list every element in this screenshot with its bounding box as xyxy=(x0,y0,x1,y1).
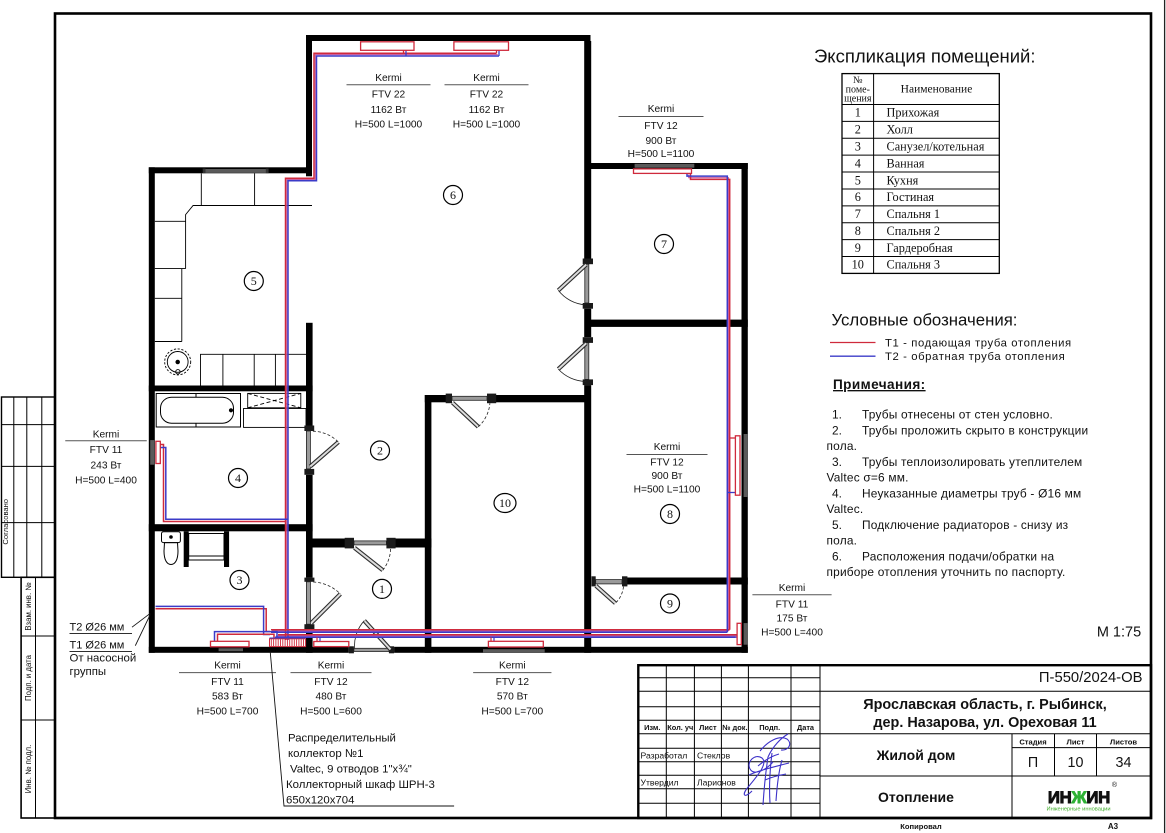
svg-text:2.: 2. xyxy=(832,423,842,437)
svg-text:Стадия: Стадия xyxy=(1019,738,1046,747)
svg-text:П: П xyxy=(1028,755,1038,771)
svg-text:Valtec, 9 отводов 1"х¾": Valtec, 9 отводов 1"х¾" xyxy=(290,764,412,776)
svg-text:Kermi: Kermi xyxy=(499,661,526,672)
svg-text:Лист: Лист xyxy=(1067,738,1085,747)
svg-text:Примечания:: Примечания: xyxy=(833,377,926,392)
svg-text:Жилой дом: Жилой дом xyxy=(876,747,956,763)
svg-text:3: 3 xyxy=(237,573,243,587)
svg-text:570 Вт: 570 Вт xyxy=(497,692,528,703)
svg-text:Отопление: Отопление xyxy=(878,789,954,805)
svg-text:Kermi: Kermi xyxy=(648,104,675,115)
svg-text:Холл: Холл xyxy=(887,123,913,137)
svg-text:H=500 L=700: H=500 L=700 xyxy=(481,707,543,718)
svg-text:Условные обозначения:: Условные обозначения: xyxy=(832,310,1018,329)
svg-text:FTV 12: FTV 12 xyxy=(314,677,348,688)
svg-text:583 Вт: 583 Вт xyxy=(212,692,243,703)
svg-text:От насосной: От насосной xyxy=(70,653,137,665)
svg-text:Инв. № подл.: Инв. № подл. xyxy=(24,745,33,794)
svg-text:Дата: Дата xyxy=(797,723,815,732)
svg-text:Valtec.: Valtec. xyxy=(827,502,864,516)
svg-text:1162 Вт: 1162 Вт xyxy=(469,105,505,116)
svg-text:Подп.: Подп. xyxy=(759,723,780,732)
svg-text:900 Вт: 900 Вт xyxy=(646,136,677,147)
svg-text:9: 9 xyxy=(667,597,673,611)
svg-text:Спальня 3: Спальня 3 xyxy=(887,258,941,272)
svg-text:Т1 Ø26 мм: Т1 Ø26 мм xyxy=(70,639,125,651)
svg-text:приборе отопления уточнить по: приборе отопления уточнить по паспорту. xyxy=(827,565,1066,579)
svg-text:ИНЖИН: ИНЖИН xyxy=(1048,788,1110,807)
svg-text:®: ® xyxy=(1112,781,1118,789)
svg-text:Санузел/котельная: Санузел/котельная xyxy=(887,140,985,154)
svg-text:Прихожая: Прихожая xyxy=(887,106,940,120)
svg-text:FTV 12: FTV 12 xyxy=(644,121,678,132)
svg-text:Спальня 2: Спальня 2 xyxy=(887,224,941,238)
svg-text:5.: 5. xyxy=(832,518,842,532)
svg-text:1162 Вт: 1162 Вт xyxy=(371,105,407,116)
svg-text:группы: группы xyxy=(70,666,107,678)
svg-text:Гардеробная: Гардеробная xyxy=(887,241,954,255)
svg-text:FTV 12: FTV 12 xyxy=(650,458,684,469)
svg-text:П-550/2024-ОВ: П-550/2024-ОВ xyxy=(1039,670,1143,686)
svg-text:Взам. инв. №: Взам. инв. № xyxy=(24,582,33,630)
svg-text:6.: 6. xyxy=(832,549,842,563)
svg-text:Спальня 1: Спальня 1 xyxy=(887,207,941,221)
svg-text:480 Вт: 480 Вт xyxy=(316,692,347,703)
svg-text:FTV 11: FTV 11 xyxy=(211,677,244,688)
svg-text:Копировал: Копировал xyxy=(900,822,942,831)
svg-text:FTV 22: FTV 22 xyxy=(372,90,406,101)
svg-text:пола.: пола. xyxy=(827,439,858,453)
svg-text:10: 10 xyxy=(852,258,864,272)
svg-text:H=500 L=700: H=500 L=700 xyxy=(197,707,259,718)
svg-text:Подп. и дата: Подп. и дата xyxy=(24,654,33,701)
svg-text:FTV 22: FTV 22 xyxy=(470,90,504,101)
svg-text:7: 7 xyxy=(661,237,667,251)
svg-text:1: 1 xyxy=(855,106,861,120)
svg-text:Стеклов: Стеклов xyxy=(697,751,731,761)
svg-text:Ларионов: Ларионов xyxy=(697,778,736,788)
svg-text:243 Вт: 243 Вт xyxy=(91,460,122,471)
svg-text:1.: 1. xyxy=(832,408,842,422)
svg-text:FTV 11: FTV 11 xyxy=(90,445,123,456)
svg-text:Коллекторный шкаф ШРН-3: Коллекторный шкаф ШРН-3 xyxy=(286,779,435,791)
svg-text:Kermi: Kermi xyxy=(93,430,120,441)
svg-text:2: 2 xyxy=(855,123,861,137)
svg-text:Кухня: Кухня xyxy=(887,173,919,187)
svg-text:8: 8 xyxy=(855,224,861,238)
svg-text:3.: 3. xyxy=(832,455,842,469)
svg-text:Kermi: Kermi xyxy=(779,583,806,594)
svg-text:900 Вт: 900 Вт xyxy=(652,471,683,482)
svg-text:Утвердил: Утвердил xyxy=(641,778,679,788)
svg-text:Kermi: Kermi xyxy=(473,73,500,84)
svg-text:Kermi: Kermi xyxy=(214,661,241,672)
svg-text:Valtec σ=6 мм.: Valtec σ=6 мм. xyxy=(827,471,909,485)
svg-text:H=500 L=1100: H=500 L=1100 xyxy=(634,485,701,496)
svg-text:Экспликация помещений:: Экспликация помещений: xyxy=(814,45,1036,66)
svg-text:Кол. уч: Кол. уч xyxy=(667,723,693,732)
svg-text:Ванная: Ванная xyxy=(887,156,925,170)
svg-text:щения: щения xyxy=(844,94,872,105)
svg-text:Т1 - подающая труба отопления: Т1 - подающая труба отопления xyxy=(885,337,1072,349)
svg-text:Трубы отнесены от стен условно: Трубы отнесены от стен условно. xyxy=(862,408,1053,422)
svg-text:коллектор №1: коллектор №1 xyxy=(288,748,363,760)
svg-text:H=500 L=1000: H=500 L=1000 xyxy=(453,120,521,131)
svg-text:6: 6 xyxy=(450,188,456,202)
svg-text:H=500 L=1100: H=500 L=1100 xyxy=(628,149,695,160)
svg-text:10: 10 xyxy=(499,496,511,510)
svg-text:4: 4 xyxy=(855,156,861,170)
svg-text:Трубы проложить скрыто в конст: Трубы проложить скрыто в конструкции xyxy=(862,423,1088,437)
svg-text:Гостиная: Гостиная xyxy=(887,190,935,204)
svg-text:6: 6 xyxy=(855,190,861,204)
svg-text:Наименование: Наименование xyxy=(901,84,973,96)
svg-text:650х120х704: 650х120х704 xyxy=(286,795,354,807)
svg-text:Распределительный: Распределительный xyxy=(288,733,396,745)
svg-text:7: 7 xyxy=(855,207,861,221)
svg-text:Согласовано: Согласовано xyxy=(1,499,10,545)
svg-text:2: 2 xyxy=(377,444,383,458)
svg-text:Kermi: Kermi xyxy=(375,73,402,84)
svg-text:FTV 11: FTV 11 xyxy=(776,600,809,611)
svg-text:Изм.: Изм. xyxy=(644,723,660,732)
svg-text:пола.: пола. xyxy=(827,534,858,548)
svg-text:4.: 4. xyxy=(832,486,842,500)
svg-text:H=500 L=400: H=500 L=400 xyxy=(75,476,137,487)
svg-text:Лист: Лист xyxy=(699,723,717,732)
svg-text:Т2 - обратная труба отопления: Т2 - обратная труба отопления xyxy=(885,351,1065,363)
svg-text:FTV 12: FTV 12 xyxy=(496,677,530,688)
svg-text:H=500 L=1000: H=500 L=1000 xyxy=(355,120,423,131)
svg-text:Неуказанные диаметры труб - Ø1: Неуказанные диаметры труб - Ø16 мм xyxy=(862,486,1081,500)
svg-text:5: 5 xyxy=(855,173,861,187)
svg-text:Ярославская область, г. Рыбинс: Ярославская область, г. Рыбинск, xyxy=(863,697,1106,713)
svg-text:Разработал: Разработал xyxy=(641,751,688,761)
svg-text:H=500 L=600: H=500 L=600 xyxy=(300,707,362,718)
svg-text:Т2 Ø26 мм: Т2 Ø26 мм xyxy=(70,621,125,633)
svg-text:Инженерные инновации: Инженерные инновации xyxy=(1047,807,1111,813)
svg-text:Подключение радиаторов - снизу: Подключение радиаторов - снизу из xyxy=(862,518,1068,532)
svg-text:4: 4 xyxy=(235,471,241,485)
svg-text:175 Вт: 175 Вт xyxy=(777,614,808,625)
svg-text:8: 8 xyxy=(667,507,673,521)
svg-text:Kermi: Kermi xyxy=(318,661,345,672)
svg-text:М 1:75: М 1:75 xyxy=(1097,625,1141,641)
svg-text:А3: А3 xyxy=(1108,822,1119,831)
svg-text:№ док.: № док. xyxy=(722,723,747,732)
svg-text:Kermi: Kermi xyxy=(654,442,681,453)
svg-text:дер. Назарова, ул. Ореховая 11: дер. Назарова, ул. Ореховая 11 xyxy=(873,715,1096,731)
svg-text:1: 1 xyxy=(379,582,385,596)
svg-text:34: 34 xyxy=(1116,755,1132,771)
svg-text:10: 10 xyxy=(1068,755,1084,771)
svg-text:Расположения подачи/обратки на: Расположения подачи/обратки на xyxy=(862,549,1055,563)
svg-text:5: 5 xyxy=(251,274,257,288)
svg-text:H=500 L=400: H=500 L=400 xyxy=(761,628,823,639)
svg-text:Листов: Листов xyxy=(1110,738,1137,747)
svg-text:Трубы теплоизолировать утеплит: Трубы теплоизолировать утеплителем xyxy=(862,455,1082,469)
svg-text:9: 9 xyxy=(855,241,861,255)
svg-text:3: 3 xyxy=(855,140,861,154)
